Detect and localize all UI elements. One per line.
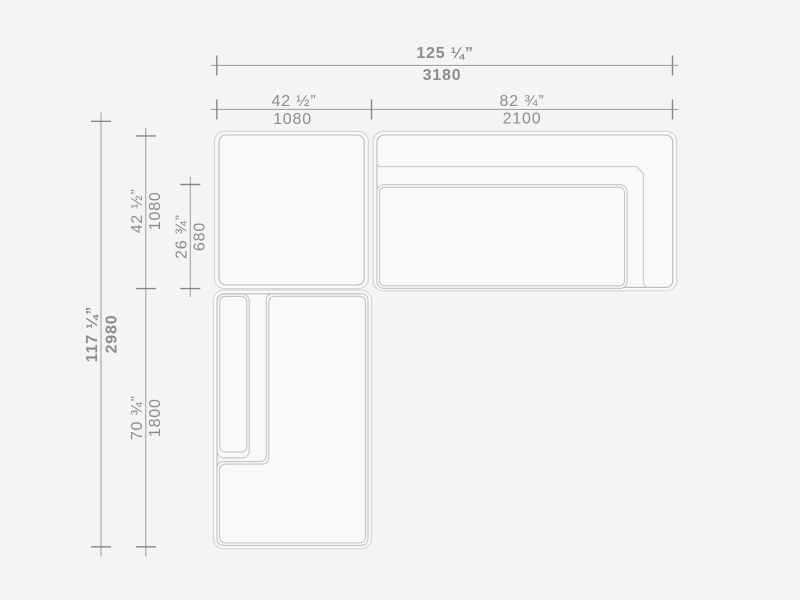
svg-text:1080: 1080 xyxy=(147,191,164,230)
svg-text:1080: 1080 xyxy=(273,111,312,128)
svg-text:42 ½”: 42 ½” xyxy=(272,93,317,110)
svg-text:26 ¾”: 26 ¾” xyxy=(174,214,191,259)
svg-text:125 ¼”: 125 ¼” xyxy=(416,45,473,62)
svg-text:1800: 1800 xyxy=(147,398,164,437)
svg-text:70 ¾”: 70 ¾” xyxy=(129,395,146,440)
svg-text:2100: 2100 xyxy=(503,111,542,128)
svg-text:82 ¾”: 82 ¾” xyxy=(500,93,545,110)
svg-text:3180: 3180 xyxy=(423,67,462,84)
svg-text:117 ¼”: 117 ¼” xyxy=(84,306,101,362)
svg-text:2980: 2980 xyxy=(104,315,121,354)
svg-text:680: 680 xyxy=(192,222,209,251)
svg-text:42 ½”: 42 ½” xyxy=(129,188,146,233)
